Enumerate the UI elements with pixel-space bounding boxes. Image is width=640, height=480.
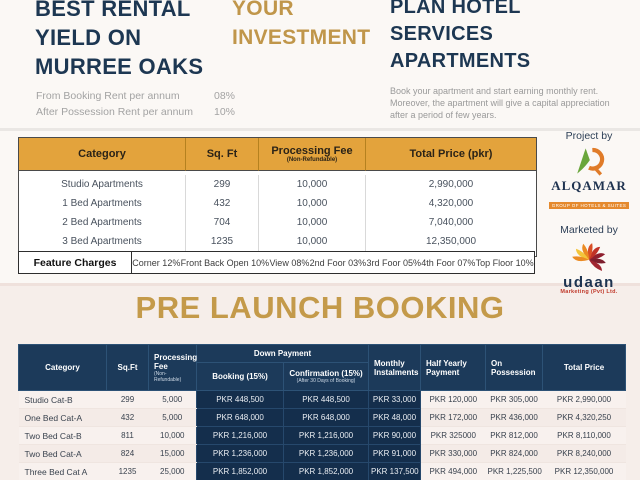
booking-header-category: Category: [19, 345, 107, 391]
table-row: Studio Cat-B 299 5,000 PKR 448,500 PKR 4…: [19, 391, 626, 409]
cell-confirmation: PKR 1,852,000: [284, 463, 369, 480]
left-heading-line: BEST RENTAL: [35, 0, 203, 23]
mid-heading-line: YOUR: [232, 0, 370, 23]
mid-heading: YOUR INVESTMENT: [232, 0, 370, 52]
cell-sqft: 704: [186, 213, 259, 232]
cell-total: PKR 2,990,000: [543, 391, 626, 409]
udaan-logo-icon: [568, 239, 610, 277]
cell-total: PKR 4,320,250: [543, 409, 626, 427]
price-header-processing: Processing Fee (Non-Refundable): [259, 138, 366, 171]
right-paragraph: Book your apartment and start earning mo…: [390, 85, 618, 121]
cell-monthly: PKR 33,000: [369, 391, 421, 409]
cell-processing: 15,000: [149, 445, 197, 463]
booking-header-possession: On Possession: [486, 345, 543, 391]
left-heading: BEST RENTAL YIELD ON MURREE OAKS: [35, 0, 203, 81]
table-row: One Bed Cat-A 432 5,000 PKR 648,000 PKR …: [19, 409, 626, 427]
rental-yield-notes: From Booking Rent per annum 08% After Po…: [36, 88, 235, 120]
cell-possession: PKR 436,000: [486, 409, 543, 427]
price-header-category: Category: [19, 138, 186, 171]
table-row: 3 Bed Apartments 1235 10,000 12,350,000: [19, 232, 536, 251]
cell-category: Studio Cat-B: [19, 391, 107, 409]
feature-charges-items: Corner 12% Front Back Open 10% View 08% …: [132, 252, 534, 273]
booking-header-monthly: Monthly Instalments: [369, 345, 421, 391]
yield-note-row: After Possession Rent per annum 10%: [36, 104, 235, 120]
cell-sqft: 1235: [186, 232, 259, 251]
feature-charges-label: Feature Charges: [19, 252, 132, 273]
cell-sqft: 811: [107, 427, 149, 445]
cell-processing: 10,000: [259, 232, 366, 251]
right-heading-line: APARTMENTS: [390, 48, 530, 75]
booking-header-halfyearly: Half Yearly Payment: [421, 345, 486, 391]
table-row: 2 Bed Apartments 704 10,000 7,040,000: [19, 213, 536, 232]
price-header-total: Total Price (pkr): [366, 138, 536, 171]
table-row: Two Bed Cat-B 811 10,000 PKR 1,216,000 P…: [19, 427, 626, 445]
cell-monthly: PKR 48,000: [369, 409, 421, 427]
feature-item: Front Back Open 10%: [181, 258, 270, 268]
table-row: Two Bed Cat-A 824 15,000 PKR 1,236,000 P…: [19, 445, 626, 463]
cell-category: Studio Apartments: [19, 175, 186, 194]
cell-processing: 10,000: [259, 175, 366, 194]
yield-note-row: From Booking Rent per annum 08%: [36, 88, 235, 104]
section-title: PRE LAUNCH BOOKING: [0, 290, 640, 326]
price-header-sqft: Sq. Ft: [186, 138, 259, 171]
cell-halfyearly: PKR 172,000: [421, 409, 486, 427]
cell-monthly: PKR 90,000: [369, 427, 421, 445]
cell-halfyearly: PKR 120,000: [421, 391, 486, 409]
feature-item: 4th Foor 07%: [421, 258, 475, 268]
cell-processing: 10,000: [259, 194, 366, 213]
cell-confirmation: PKR 448,500: [284, 391, 369, 409]
cell-confirmation: PKR 1,236,000: [284, 445, 369, 463]
cell-total: PKR 12,350,000: [543, 463, 626, 480]
left-heading-line: YIELD ON: [35, 23, 203, 52]
booking-header-total: Total Price: [543, 345, 626, 391]
booking-header-processing: Processing Fee (Non-Refundable): [149, 345, 197, 391]
feature-item: 3rd Foor 05%: [366, 258, 421, 268]
yield-note-value: 08%: [214, 88, 235, 104]
cell-category: 2 Bed Apartments: [19, 213, 186, 232]
right-heading-line: PLAN HOTEL: [390, 0, 530, 21]
feature-item: 2nd Foor 03%: [310, 258, 367, 268]
branding-column: Project by ALQAMAR GROUP OF HOTELS & SUI…: [540, 130, 638, 295]
cell-booking: PKR 1,852,000: [197, 463, 284, 480]
feature-item: View 08%: [269, 258, 309, 268]
booking-table: Category Sq.Ft Processing Fee (Non-Refun…: [18, 344, 626, 480]
cell-possession: PKR 305,000: [486, 391, 543, 409]
marketed-by-label: Marketed by: [540, 224, 638, 236]
cell-halfyearly: PKR 325000: [421, 427, 486, 445]
right-heading: PLAN HOTEL SERVICES APARTMENTS: [390, 0, 530, 75]
price-header-processing-sub: (Non-Refundable): [287, 157, 337, 163]
price-table: Category Sq. Ft Processing Fee (Non-Refu…: [18, 137, 537, 257]
cell-total: 12,350,000: [366, 232, 536, 251]
booking-header-downpayment: Down Payment: [197, 345, 369, 363]
yield-note-label: From Booking Rent per annum: [36, 88, 214, 104]
cell-category: 1 Bed Apartments: [19, 194, 186, 213]
left-heading-line: MURREE OAKS: [35, 52, 203, 81]
cell-total: PKR 8,110,000: [543, 427, 626, 445]
cell-booking: PKR 1,216,000: [197, 427, 284, 445]
cell-booking: PKR 448,500: [197, 391, 284, 409]
cell-sqft: 432: [107, 409, 149, 427]
cell-processing: 5,000: [149, 391, 197, 409]
cell-category: Two Bed Cat-B: [19, 427, 107, 445]
booking-header-confirmation: Confirmation (15%) (After 30 Days of Boo…: [284, 363, 369, 391]
feature-item: Corner 12%: [132, 258, 180, 268]
booking-header-sqft: Sq.Ft: [107, 345, 149, 391]
cell-sqft: 1235: [107, 463, 149, 480]
cell-monthly: PKR 137,500: [369, 463, 421, 480]
feature-charges-bar: Feature Charges Corner 12% Front Back Op…: [18, 251, 535, 274]
project-by-label: Project by: [540, 130, 638, 142]
cell-sqft: 299: [186, 175, 259, 194]
cell-category: Three Bed Cat A: [19, 463, 107, 480]
cell-total: 7,040,000: [366, 213, 536, 232]
table-row: 1 Bed Apartments 432 10,000 4,320,000: [19, 194, 536, 213]
cell-booking: PKR 648,000: [197, 409, 284, 427]
alqamar-tagline: GROUP OF HOTELS & SUITES: [549, 202, 630, 209]
right-heading-line: SERVICES: [390, 21, 530, 48]
cell-sqft: 299: [107, 391, 149, 409]
table-row: Three Bed Cat A 1235 25,000 PKR 1,852,00…: [19, 463, 626, 480]
price-table-header: Category Sq. Ft Processing Fee (Non-Refu…: [19, 138, 536, 171]
cell-total: 2,990,000: [366, 175, 536, 194]
cell-monthly: PKR 91,000: [369, 445, 421, 463]
cell-halfyearly: PKR 330,000: [421, 445, 486, 463]
cell-category: 3 Bed Apartments: [19, 232, 186, 251]
price-table-body: Studio Apartments 299 10,000 2,990,000 1…: [19, 171, 536, 256]
mid-heading-line: INVESTMENT: [232, 23, 370, 52]
cell-confirmation: PKR 648,000: [284, 409, 369, 427]
udaan-wordmark: udaan: [540, 277, 638, 289]
cell-processing: 25,000: [149, 463, 197, 480]
cell-processing: 10,000: [149, 427, 197, 445]
cell-confirmation: PKR 1,216,000: [284, 427, 369, 445]
cell-booking: PKR 1,236,000: [197, 445, 284, 463]
price-header-processing-label: Processing Fee: [271, 145, 352, 157]
booking-header-booking: Booking (15%): [197, 363, 284, 391]
cell-category: One Bed Cat-A: [19, 409, 107, 427]
yield-note-label: After Possession Rent per annum: [36, 104, 214, 120]
cell-possession: PKR 1,225,500: [486, 463, 543, 480]
cell-sqft: 824: [107, 445, 149, 463]
alqamar-logo-icon: [572, 145, 606, 177]
cell-total: 4,320,000: [366, 194, 536, 213]
cell-sqft: 432: [186, 194, 259, 213]
cell-processing: 10,000: [259, 213, 366, 232]
flyer-page: BEST RENTAL YIELD ON MURREE OAKS From Bo…: [0, 0, 640, 480]
feature-item: Top Floor 10%: [476, 258, 534, 268]
cell-processing: 5,000: [149, 409, 197, 427]
yield-note-value: 10%: [214, 104, 235, 120]
cell-possession: PKR 812,000: [486, 427, 543, 445]
alqamar-wordmark: ALQAMAR: [540, 178, 638, 194]
cell-possession: PKR 824,000: [486, 445, 543, 463]
cell-halfyearly: PKR 494,000: [421, 463, 486, 480]
cell-category: Two Bed Cat-A: [19, 445, 107, 463]
table-row: Studio Apartments 299 10,000 2,990,000: [19, 175, 536, 194]
cell-total: PKR 8,240,000: [543, 445, 626, 463]
